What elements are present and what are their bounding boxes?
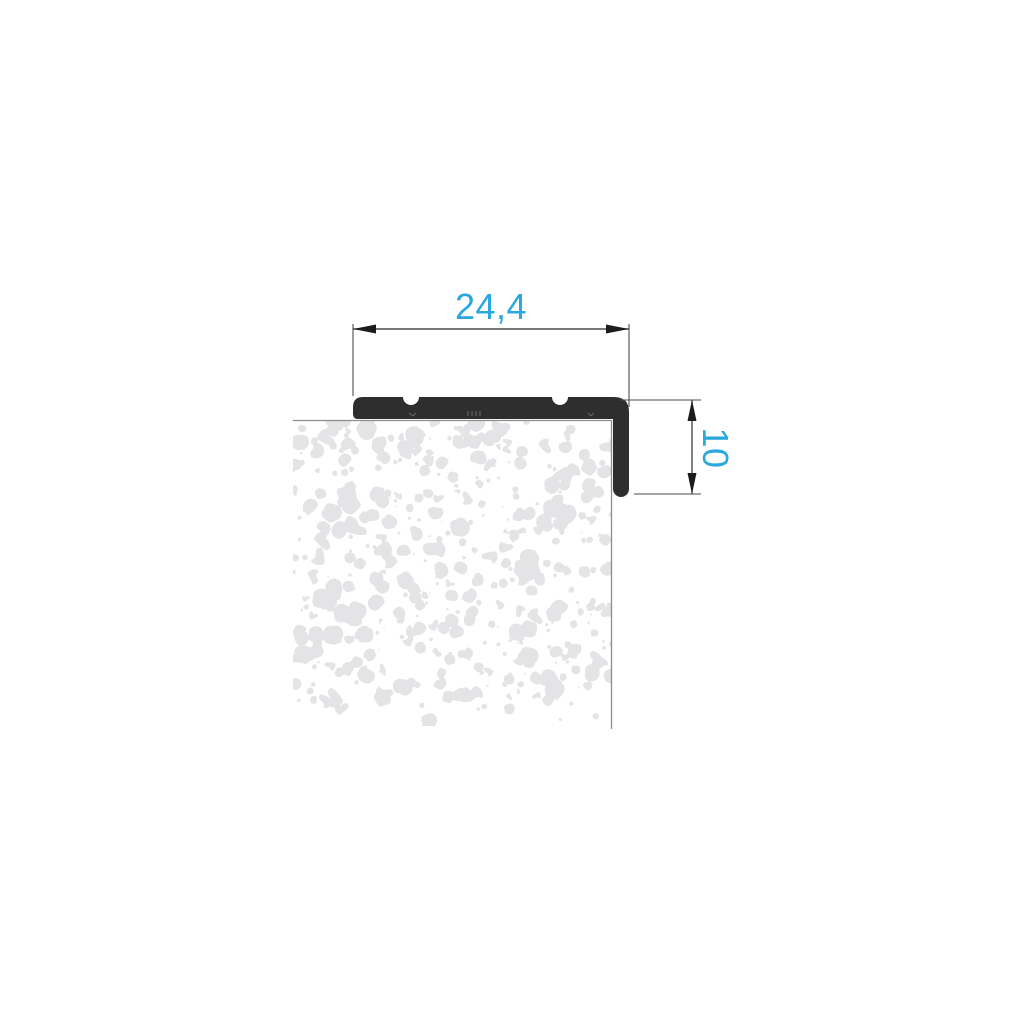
width-arrow-right-icon [606, 325, 629, 334]
width-dimension-label: 24,4 [431, 289, 551, 325]
height-arrow-down-icon [688, 473, 697, 494]
technical-drawing [0, 0, 1024, 1024]
width-dimension [353, 324, 629, 407]
height-dimension-label: 10 [697, 427, 733, 469]
diagram-canvas: 24,4 10 [0, 0, 1024, 1024]
substrate-texture [285, 412, 622, 730]
height-dimension [620, 400, 701, 494]
width-arrow-left-icon [353, 325, 376, 334]
height-arrow-up-icon [688, 400, 697, 421]
